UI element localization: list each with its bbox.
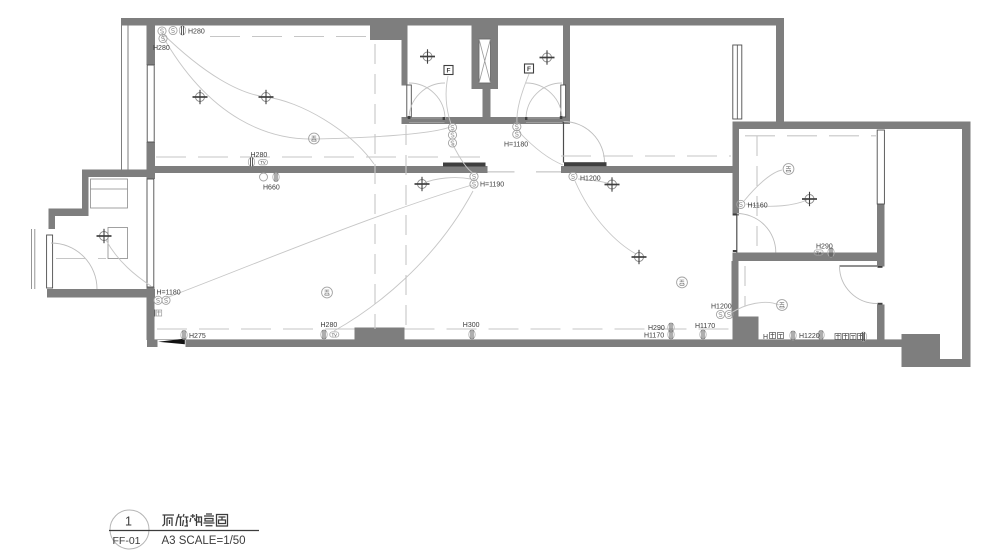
svg-text:H290: H290: [648, 325, 665, 332]
svg-text:H275: H275: [189, 333, 206, 340]
svg-text:F: F: [527, 66, 531, 73]
svg-text:A3 SCALE=1/50: A3 SCALE=1/50: [162, 535, 246, 547]
svg-text:H280: H280: [153, 45, 170, 52]
svg-text:H1200: H1200: [580, 176, 601, 183]
svg-text:1: 1: [125, 515, 132, 529]
svg-text:H=1180: H=1180: [157, 290, 181, 297]
svg-text:H1170: H1170: [695, 323, 715, 330]
svg-text:H280: H280: [321, 322, 338, 329]
svg-text:H660: H660: [263, 184, 280, 191]
svg-text:H290: H290: [816, 244, 833, 251]
svg-text:H1160: H1160: [748, 203, 768, 210]
svg-text:FF-01: FF-01: [113, 535, 141, 547]
svg-text:H300: H300: [463, 322, 480, 329]
svg-text:F: F: [447, 68, 451, 75]
svg-text:H: H: [763, 334, 768, 341]
svg-text:H1220: H1220: [799, 333, 820, 340]
svg-text:H=1190: H=1190: [480, 182, 504, 189]
svg-text:H=1180: H=1180: [504, 142, 528, 149]
svg-text:H280: H280: [251, 152, 268, 159]
svg-text:H1170: H1170: [644, 333, 664, 340]
svg-text:H1200: H1200: [711, 304, 732, 311]
svg-text:H280: H280: [188, 29, 205, 36]
